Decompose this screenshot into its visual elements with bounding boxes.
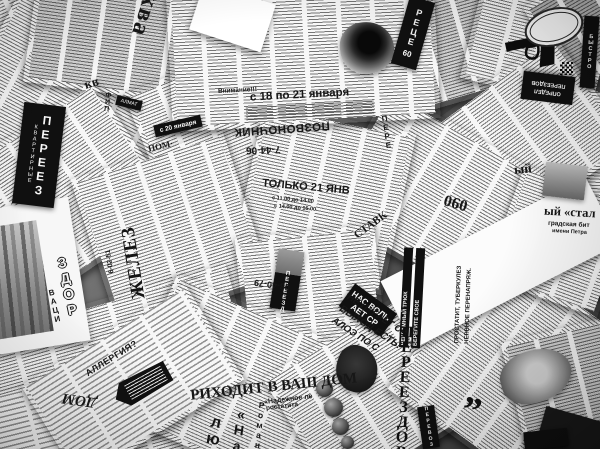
coin-photo (341, 436, 354, 449)
retse-label: РЕЦЕ (405, 7, 425, 48)
coin-photo (332, 418, 349, 435)
opredel-line1: ОПРЕДЕЛ (534, 87, 562, 96)
yi-fragment: ый (513, 161, 532, 176)
retse-number: 60 (402, 48, 413, 59)
nervnoe-line: НЕРВНОЕ ПЕРЕНАПРЯЖ. (464, 240, 475, 344)
coin-photo (324, 398, 343, 417)
black-strip (523, 428, 569, 449)
people-photo (0, 220, 54, 342)
stal-headline: ый «стал (544, 205, 596, 220)
street-photo (542, 162, 588, 201)
health-ad-vertical: ПРОСТАТИТ, ТУБЕРКУЛЕЗ НЕРВНОЕ ПЕРЕНАПРЯЖ… (454, 239, 492, 344)
phone-number-flipped: 7-44-06 (246, 143, 281, 154)
newspaper-collage-photo: Внимание!!! с 18 по 21 января осква кв К… (0, 0, 600, 449)
